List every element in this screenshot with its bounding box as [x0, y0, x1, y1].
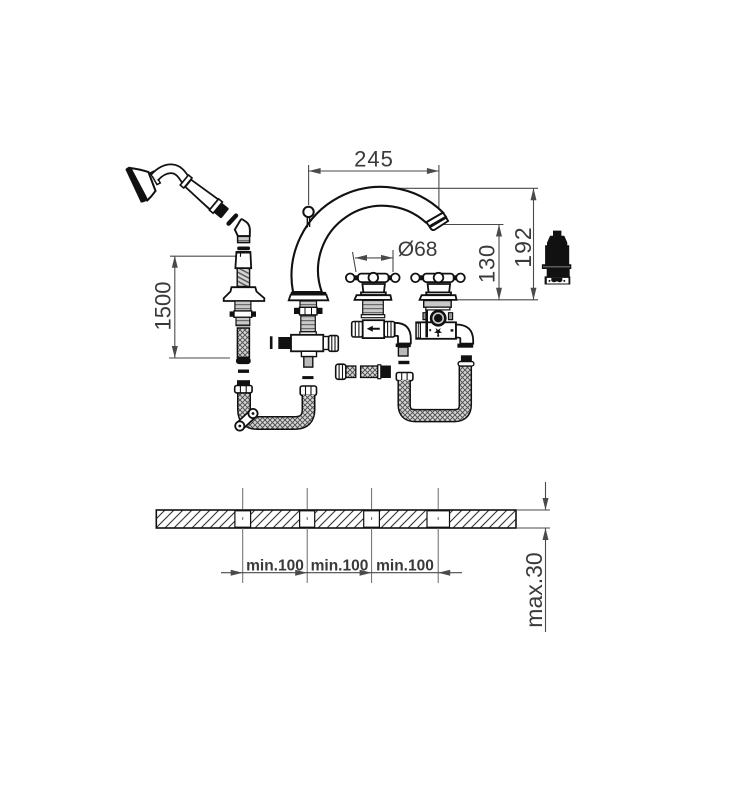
svg-text:1500: 1500 [151, 282, 176, 331]
svg-text:min.100: min.100 [311, 558, 369, 575]
svg-text:min.100: min.100 [376, 558, 434, 575]
svg-text:192: 192 [510, 226, 536, 267]
svg-text:max.30: max.30 [521, 552, 547, 627]
svg-text:min.100: min.100 [246, 558, 304, 575]
svg-text:Ø68: Ø68 [398, 238, 438, 261]
svg-text:130: 130 [475, 244, 500, 283]
svg-text:245: 245 [354, 147, 394, 172]
